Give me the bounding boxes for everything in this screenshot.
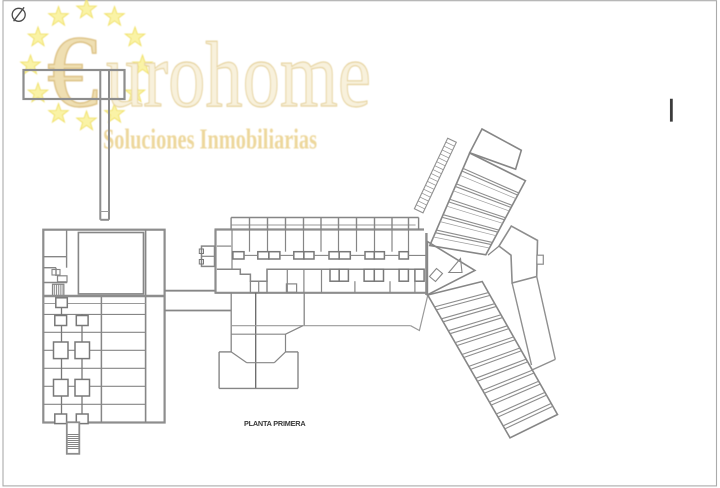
svg-text:€: € xyxy=(47,15,99,129)
svg-text:PLANTA PRIMERA: PLANTA PRIMERA xyxy=(244,419,306,428)
svg-text:urohome: urohome xyxy=(106,24,371,127)
svg-text:Soluciones Inmobiliarias: Soluciones Inmobiliarias xyxy=(103,125,317,156)
